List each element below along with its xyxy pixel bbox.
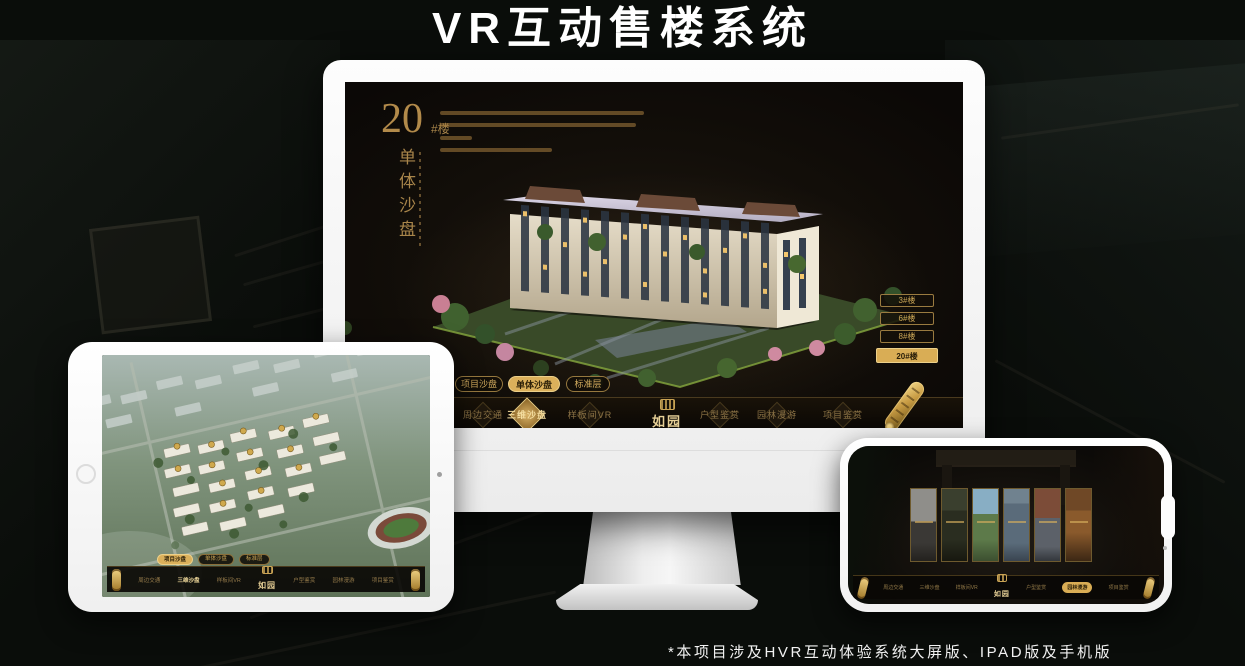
nav-item-3d-sandbox-active[interactable]: 三维沙盘 — [177, 576, 199, 584]
nav-item-traffic[interactable]: 周边交通 — [138, 576, 160, 584]
nav-item-showroom-vr[interactable]: 样板间VR — [217, 576, 241, 584]
background-plaque — [89, 216, 212, 335]
tablet-tab-group: 项目沙盘 单体沙盘 标准层 — [157, 554, 270, 565]
monitor-stand — [580, 511, 744, 585]
tablet-camera-icon — [437, 472, 442, 477]
ruyuan-logo: 如园 — [258, 566, 276, 593]
nav-item-garden-roam-active[interactable]: 园林漫游 — [1062, 582, 1092, 593]
ruyuan-logo-emblem-icon — [262, 566, 273, 574]
floor-button-3[interactable]: 3#楼 — [880, 294, 934, 307]
scroll-icon[interactable] — [411, 569, 420, 591]
gallery-panel[interactable] — [910, 488, 937, 562]
nav-item-3d-sandbox-active[interactable]: 三维沙盘 — [507, 408, 547, 421]
phone-mockup: 周边交通 三维沙盘 样板间VR 如园 户型鉴赏 园林漫游 项目鉴赏 — [840, 438, 1172, 612]
background-aerial-band — [968, 63, 1245, 257]
tab-project-sandbox[interactable]: 项目沙盘 — [455, 376, 503, 392]
tablet-tab-single-sandbox[interactable]: 单体沙盘 — [198, 554, 234, 565]
ruyuan-logo-text: 如园 — [258, 581, 276, 590]
panel-caption — [946, 521, 964, 523]
ruyuan-logo-emblem-icon — [997, 574, 1007, 582]
ruyuan-logo-text: 如园 — [994, 590, 1010, 598]
floor-button-8[interactable]: 8#楼 — [880, 330, 934, 343]
tab-standard-floor[interactable]: 标准层 — [566, 376, 610, 392]
ruyuan-logo-emblem-icon — [659, 399, 674, 410]
nav-item-showroom-vr[interactable]: 样板间VR — [568, 408, 613, 421]
floor-button-20-active[interactable]: 20#楼 — [876, 348, 938, 363]
gallery-panel[interactable] — [941, 488, 968, 562]
panel-caption — [915, 521, 933, 523]
gate-silhouette — [936, 450, 1076, 465]
phone-camera-icon — [1163, 546, 1167, 550]
panel-caption — [1070, 521, 1088, 523]
gallery-panel[interactable] — [1065, 488, 1092, 562]
nav-item-traffic[interactable]: 周边交通 — [883, 584, 903, 591]
nav-item-project-view[interactable]: 项目鉴赏 — [823, 408, 863, 421]
nav-item-3d-sandbox[interactable]: 三维沙盘 — [919, 584, 939, 591]
tablet-tab-standard-floor[interactable]: 标准层 — [239, 554, 270, 565]
nav-item-traffic[interactable]: 周边交通 — [463, 408, 503, 421]
ruyuan-logo: 如园 — [652, 399, 682, 428]
ruyuan-logo: 如园 — [994, 574, 1010, 601]
nav-item-unit-plans[interactable]: 户型鉴赏 — [1026, 584, 1046, 591]
phone-notch — [1161, 495, 1175, 539]
gallery-panel[interactable] — [1034, 488, 1061, 562]
panel-caption — [1008, 521, 1026, 523]
tab-single-sandbox-active[interactable]: 单体沙盘 — [508, 376, 560, 392]
nav-item-unit-plans[interactable]: 户型鉴赏 — [293, 576, 315, 584]
page-title: VR互动售楼系统 — [0, 0, 1245, 58]
phone-screen: 周边交通 三维沙盘 样板间VR 如园 户型鉴赏 园林漫游 项目鉴赏 — [848, 446, 1164, 604]
footnote-text: *本项目涉及HVR互动体验系统大屏版、IPAD版及手机版 — [668, 641, 1112, 662]
nav-item-showroom-vr[interactable]: 样板间VR — [956, 584, 978, 591]
tablet-tab-project-sandbox-active[interactable]: 项目沙盘 — [157, 554, 193, 565]
panel-caption — [977, 521, 995, 523]
page: VR互动售楼系统 20 #楼 单体沙盘 — [0, 0, 1245, 666]
floor-button-6[interactable]: 6#楼 — [880, 312, 934, 325]
gallery-panel[interactable] — [1003, 488, 1030, 562]
nav-item-project-view[interactable]: 项目鉴赏 — [372, 576, 394, 584]
phone-navbar: 周边交通 三维沙盘 样板间VR 如园 户型鉴赏 园林漫游 项目鉴赏 — [853, 575, 1159, 599]
nav-item-project-view[interactable]: 项目鉴赏 — [1109, 584, 1129, 591]
nav-item-garden-roam[interactable]: 园林漫游 — [333, 576, 355, 584]
scroll-icon[interactable] — [1142, 576, 1155, 599]
tablet-navbar: 周边交通 三维沙盘 样板间VR 如园 户型鉴赏 园林漫游 项目鉴赏 — [107, 566, 425, 592]
tablet-screen: 项目沙盘 单体沙盘 标准层 周边交通 三维沙盘 样板间VR 如园 户型鉴赏 园林… — [102, 355, 430, 597]
monitor-stand-base — [556, 584, 758, 610]
nav-item-garden-roam[interactable]: 园林漫游 — [757, 408, 797, 421]
scroll-icon[interactable] — [112, 569, 121, 591]
scroll-icon[interactable] — [856, 576, 869, 599]
ruyuan-logo-text: 如园 — [652, 414, 682, 428]
panel-caption — [1039, 521, 1057, 523]
gallery-panel[interactable] — [972, 488, 999, 562]
floor-button-group: 3#楼 6#楼 8#楼 20#楼 — [875, 294, 939, 363]
tablet-mockup: 项目沙盘 单体沙盘 标准层 周边交通 三维沙盘 样板间VR 如园 户型鉴赏 园林… — [68, 342, 454, 612]
nav-item-unit-plans[interactable]: 户型鉴赏 — [700, 408, 740, 421]
tablet-home-button[interactable] — [76, 464, 96, 484]
